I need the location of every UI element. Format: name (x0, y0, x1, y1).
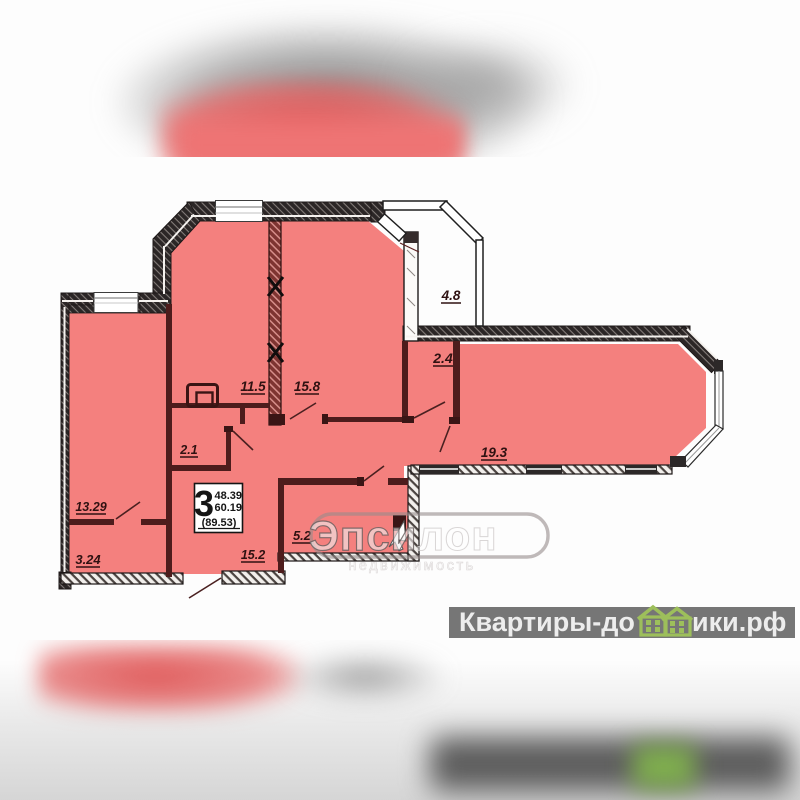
svg-text:4.8: 4.8 (441, 288, 461, 303)
svg-text:60.19: 60.19 (214, 502, 242, 514)
svg-text:19.3: 19.3 (481, 445, 508, 460)
svg-text:ики.рф: ики.рф (692, 607, 786, 637)
svg-text:2.1: 2.1 (179, 443, 197, 457)
svg-text:2.4: 2.4 (432, 350, 453, 366)
svg-text:Эпсилон: Эпсилон (309, 512, 498, 559)
svg-text:3.24: 3.24 (75, 552, 101, 567)
svg-text:13.29: 13.29 (75, 500, 106, 514)
svg-text:(89.53): (89.53) (202, 517, 237, 529)
svg-text:недвижимость: недвижимость (348, 558, 475, 574)
svg-text:15.2: 15.2 (241, 548, 265, 562)
svg-text:11.5: 11.5 (240, 379, 266, 394)
svg-text:48.39: 48.39 (214, 490, 242, 502)
svg-text:Квартиры-до: Квартиры-до (459, 607, 635, 637)
svg-text:15.8: 15.8 (294, 379, 321, 394)
